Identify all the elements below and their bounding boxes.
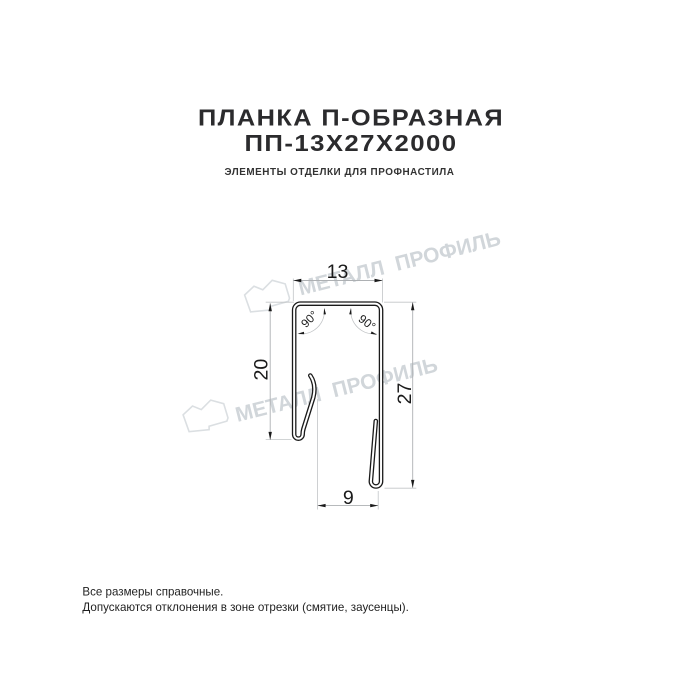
svg-text:ЭЛЕМЕНТЫ ОТДЕЛКИ ДЛЯ ПРОФНАСТИ: ЭЛЕМЕНТЫ ОТДЕЛКИ ДЛЯ ПРОФНАСТИЛА xyxy=(225,167,455,178)
svg-text:ПЛАНКА П-ОБРАЗНАЯ: ПЛАНКА П-ОБРАЗНАЯ xyxy=(198,105,504,131)
svg-text:13: 13 xyxy=(327,261,349,283)
svg-text:Все размеры справочные.: Все размеры справочные. xyxy=(82,584,223,598)
svg-text:27: 27 xyxy=(394,383,416,405)
svg-text:20: 20 xyxy=(251,359,273,381)
svg-text:Допускаются отклонения в зоне: Допускаются отклонения в зоне отрезки (с… xyxy=(82,600,409,614)
svg-text:9: 9 xyxy=(343,487,354,509)
svg-text:ПП-13Х27Х2000: ПП-13Х27Х2000 xyxy=(245,130,458,156)
